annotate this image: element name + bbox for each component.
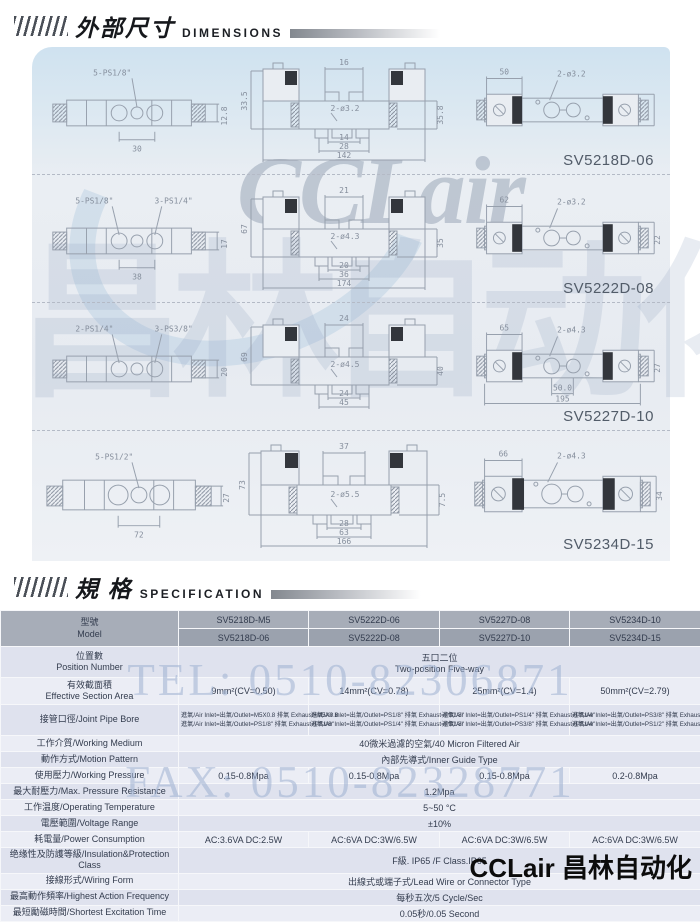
port-label: 5-PS1/2": [95, 452, 133, 461]
dim2: 28: [339, 142, 349, 151]
model-cell: SV5227D-10: [440, 629, 570, 647]
overall-dim: 166: [337, 537, 352, 546]
hole-label: 2-ø5.5: [331, 490, 360, 499]
valve-top-view-drawing: 65 2-ø4.3 27 50.0 195: [455, 318, 667, 416]
valve-front-view-drawing: 67 21 2-ø4.3 20 36 174 35: [236, 183, 452, 295]
dimensions-panel: CCLair 昌林自动化 5-PS1/8" 30 12.8: [32, 47, 670, 561]
table-row-motion-pattern: 動作方式/Motion Pattern 內部先導式/Inner Guide Ty…: [1, 752, 700, 768]
drawing-row-sv5218d: 5-PS1/8" 30 12.8: [32, 47, 670, 175]
row-label: 有效截面積Effective Section Area: [1, 678, 179, 705]
valve-side-view-drawing: 2-PS1/4" 3-PS3/8" 20: [35, 318, 233, 416]
value-cell: 50mm²(CV=2.79): [570, 678, 700, 705]
row-label: 工作温度/Operating Temperature: [1, 800, 179, 816]
dimensions-section-header: 外部尺寸 DIMENSIONS: [0, 0, 700, 45]
row-label: 接管口徑/Joint Pipe Bore: [1, 705, 179, 736]
port-label-2: 3-PS3/8": [155, 324, 193, 333]
width-dim: 72: [134, 530, 144, 539]
model-label: SV5227D-10: [563, 408, 654, 425]
dim1: 28: [339, 519, 349, 528]
right-dim: 27: [653, 362, 662, 372]
row-label: 最大耐壓力/Max. Pressure Resistance: [1, 784, 179, 800]
model-label: SV5222D-08: [563, 280, 654, 297]
table-row-working-medium: 工作介質/Working Medium 40微米過濾的空氣/40 Micron …: [1, 736, 700, 752]
table-row-highest-action-frequency: 最高動作頻率/Highest Action Frequency 每秒五次/5 C…: [1, 889, 700, 905]
table-row-effective-area: 有效截面積Effective Section Area 9mm²(CV=0.50…: [1, 678, 700, 705]
dim1: 24: [339, 389, 349, 398]
hole-label: 2-ø4.5: [331, 360, 360, 369]
value-cell: AC:6VA DC:3W/6.5W: [309, 832, 440, 848]
width-dim: 30: [132, 144, 142, 153]
row-label: 耗電量/Power Consumption: [1, 832, 179, 848]
hole-label: 2-ø3.2: [331, 104, 360, 113]
value-cell: 25mm²(CV=1.4): [440, 678, 570, 705]
height-dim: 17: [220, 238, 229, 248]
value-cell: 14mm²(CV=0.78): [309, 678, 440, 705]
dimensions-title-en: DIMENSIONS: [182, 26, 283, 43]
right-dim: 22: [653, 234, 662, 244]
table-row-voltage-range: 電壓範圍/Voltage Range ±10%: [1, 816, 700, 832]
value-cell: 進氣/Air Inlet=出氣/Outlet=PS3/8" 排氣 Exhaust…: [570, 705, 700, 736]
drawing-row-sv5227d: 2-PS1/4" 3-PS3/8" 20: [32, 303, 670, 431]
top-dim: 37: [339, 442, 349, 451]
table-row-working-pressure: 使用壓力/Working Pressure 0.15-0.8Mpa 0.15-0…: [1, 768, 700, 784]
valve-side-view-drawing: 5-PS1/8" 30 12.8: [35, 62, 233, 160]
table-row-max-pressure: 最大耐壓力/Max. Pressure Resistance 1.2Mpa: [1, 784, 700, 800]
header-gradient-bar: [271, 590, 421, 599]
row-label: 使用壓力/Working Pressure: [1, 768, 179, 784]
model-cell: SV5222D-06: [309, 611, 440, 629]
table-row-operating-temperature: 工作温度/Operating Temperature 5~50 °C: [1, 800, 700, 816]
height-dim: 27: [222, 492, 231, 502]
valve-side-view-drawing: 5-PS1/2" 72 27: [35, 446, 233, 544]
height-dim: 20: [220, 366, 229, 376]
brand-logo-text: CCLair 昌林自动化: [470, 848, 692, 885]
left-dim: 33.5: [240, 91, 249, 110]
top-dim: 50: [500, 67, 510, 76]
table-row-shortest-excitation-time: 最短勵磁時間/Shortest Excitation Time 0.05秒/0.…: [1, 905, 700, 921]
hole-label: 2-ø4.3: [557, 325, 586, 334]
value-cell: 0.15-0.8Mpa: [309, 768, 440, 784]
row-label: 绝缘性及防護等級/Insulation&Protection Class: [1, 848, 179, 874]
top-dim: 65: [500, 323, 510, 332]
specification-title-zh: 規 格: [75, 570, 133, 604]
hole-label: 2-ø3.2: [557, 197, 586, 206]
right-dim: 7.5: [438, 492, 447, 507]
valve-top-view-drawing: 62 2-ø3.2 22: [455, 190, 667, 288]
top-dim: 24: [339, 314, 349, 323]
hatch-decoration-icon: [14, 577, 68, 597]
left-dim: 69: [240, 352, 249, 362]
dim2: 36: [339, 270, 349, 279]
model-cell: SV5218D-M5: [179, 611, 309, 629]
drawing-row-sv5234d: 5-PS1/2" 72 27: [32, 431, 670, 558]
model-label: SV5234D-15: [563, 536, 654, 553]
specification-section-header: 規 格 SPECIFICATION: [0, 561, 700, 606]
row-value: 5~50 °C: [179, 800, 700, 816]
left-dim: 73: [238, 480, 247, 490]
top-dim: 62: [500, 195, 510, 204]
left-dim: 67: [240, 224, 249, 234]
table-row-pipe-bore: 接管口徑/Joint Pipe Bore 進氣/Air Inlet=出氣/Out…: [1, 705, 700, 736]
hatch-decoration-icon: [14, 16, 68, 36]
row-label: 接線形式/Wiring Form: [1, 873, 179, 889]
port-label: 5-PS1/8": [75, 196, 113, 205]
dim1: 14: [339, 133, 349, 142]
value-cell: 0.15-0.8Mpa: [440, 768, 570, 784]
row-label-model: 型號Model: [1, 611, 179, 647]
model-cell: SV5234D-15: [570, 629, 700, 647]
right-dim: 35.8: [436, 105, 445, 124]
dim1: 20: [339, 261, 349, 270]
header-gradient-bar: [290, 29, 440, 38]
row-label: 動作方式/Motion Pattern: [1, 752, 179, 768]
port-label-2: 3-PS1/4": [155, 196, 193, 205]
hole-label: 2-ø4.3: [557, 451, 586, 460]
right-dim: 40: [436, 366, 445, 376]
row-value: 內部先導式/Inner Guide Type: [179, 752, 700, 768]
value-cell: 進氣/Air Inlet=出氣/Outlet=PS1/4" 排氣 Exhaust…: [440, 705, 570, 736]
value-cell: 進氣/Air Inlet=出氣/Outlet=PS1/8" 排氣 Exhaust…: [309, 705, 440, 736]
value-cell: 進氣/Air Inlet=出氣/Outlet=M5X0.8 排氣 Exhaust…: [179, 705, 309, 736]
valve-top-view-drawing: 50 2-ø3.2: [455, 62, 667, 160]
row-value: 40微米過濾的空氣/40 Micron Filtered Air: [179, 736, 700, 752]
value-cell: AC:6VA DC:3W/6.5W: [570, 832, 700, 848]
valve-side-view-drawing: 5-PS1/8" 3-PS1/4" 38 17: [35, 190, 233, 288]
valve-top-view-drawing: 66 2-ø4.3 34: [455, 446, 667, 544]
row-value: 1.2Mpa: [179, 784, 700, 800]
top-dim: 21: [339, 186, 349, 195]
value-cell: 0.15-0.8Mpa: [179, 768, 309, 784]
port-label: 2-PS1/4": [75, 324, 113, 333]
drawing-row-sv5222d: 5-PS1/8" 3-PS1/4" 38 17: [32, 175, 670, 303]
row-value: ±10%: [179, 816, 700, 832]
model-cell: SV5234D-10: [570, 611, 700, 629]
value-cell: 0.2-0.8Mpa: [570, 768, 700, 784]
row-label: 最短勵磁時間/Shortest Excitation Time: [1, 905, 179, 921]
row-value: 五口二位Two-position Five-way: [179, 647, 700, 678]
right-dim: 34: [655, 490, 664, 500]
row-label: 電壓範圍/Voltage Range: [1, 816, 179, 832]
specification-title-en: SPECIFICATION: [140, 587, 264, 604]
hole-label: 2-ø4.3: [331, 232, 360, 241]
row-label: 位置數Position Number: [1, 647, 179, 678]
model-label: SV5218D-06: [563, 152, 654, 169]
row-label: 工作介質/Working Medium: [1, 736, 179, 752]
table-row-model-a: 型號Model SV5218D-M5 SV5222D-06 SV5227D-08…: [1, 611, 700, 629]
value-cell: AC:3.6VA DC:2.5W: [179, 832, 309, 848]
overall-dim: 142: [337, 151, 352, 160]
dim2: 45: [339, 398, 349, 407]
dim1: 50.0: [553, 383, 572, 392]
row-value: 每秒五次/5 Cycle/Sec: [179, 889, 700, 905]
top-dim: 66: [499, 449, 509, 458]
dimensions-title-zh: 外部尺寸: [75, 9, 175, 43]
table-row-power-consumption: 耗電量/Power Consumption AC:3.6VA DC:2.5W A…: [1, 832, 700, 848]
top-dim: 16: [339, 58, 349, 67]
overall-dim: 174: [337, 279, 352, 288]
value-cell: 9mm²(CV=0.50): [179, 678, 309, 705]
model-cell: SV5218D-06: [179, 629, 309, 647]
valve-front-view-drawing: 73 37 2-ø5.5 28 63 166 7.5: [236, 439, 452, 551]
value-cell: AC:6VA DC:3W/6.5W: [440, 832, 570, 848]
hole-label: 2-ø3.2: [557, 69, 586, 78]
row-value: 0.05秒/0.05 Second: [179, 905, 700, 921]
width-dim: 38: [132, 272, 142, 281]
overall-dim: 195: [555, 394, 569, 403]
height-dim: 12.8: [220, 106, 229, 125]
valve-front-view-drawing: 69 24 2-ø4.5 24 45 40: [236, 311, 452, 423]
dim2: 63: [339, 528, 349, 537]
table-row-position-number: 位置數Position Number 五口二位Two-position Five…: [1, 647, 700, 678]
row-label: 最高動作頻率/Highest Action Frequency: [1, 889, 179, 905]
right-dim: 35: [436, 238, 445, 248]
valve-front-view-drawing: 33.5 16 2-ø3.2 14 28 142 35.8: [236, 55, 452, 167]
model-cell: SV5222D-08: [309, 629, 440, 647]
port-label: 5-PS1/8": [93, 68, 131, 77]
model-cell: SV5227D-08: [440, 611, 570, 629]
